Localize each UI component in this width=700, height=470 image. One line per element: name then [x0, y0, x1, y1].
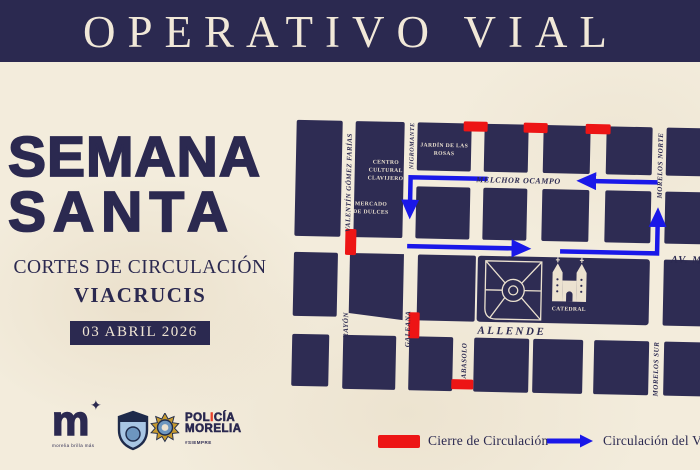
city-block: [663, 260, 700, 327]
poster-title: OPERATIVO VIAL: [83, 0, 619, 62]
closure-bar: [586, 124, 611, 135]
place-label-mercado-2: DE DULCES: [353, 209, 389, 216]
city-block: [541, 189, 589, 242]
city-block: [473, 338, 529, 393]
poster: OPERATIVO VIAL SEMANA SANTA CORTES DE CI…: [0, 0, 700, 470]
header-banner: OPERATIVO VIAL: [0, 0, 700, 62]
date-badge-wrap: 03 ABRIL 2026: [8, 321, 272, 345]
city-block: [408, 336, 453, 391]
city-block: [532, 339, 583, 394]
city-block: [349, 253, 404, 320]
title-semana: SEMANA: [8, 130, 272, 185]
police-logo: POLICÍA MORELIA #SIEMPRE: [150, 413, 242, 445]
city-block: [666, 128, 700, 177]
left-panel: SEMANA SANTA CORTES DE CIRCULACIÓN VIACR…: [8, 130, 272, 345]
closure-bar: [524, 123, 548, 134]
street-label-galeana: GALEANA: [404, 311, 413, 348]
legend-closure-label: Cierre de Circulación: [428, 433, 548, 449]
street-label-morelos-sur: MORELOS SUR: [652, 342, 661, 398]
route-ocampo-west: [584, 181, 658, 183]
city-logo: m✦ morelia brilla más: [52, 402, 116, 448]
city-block: [293, 252, 338, 317]
city-block: [593, 340, 649, 395]
city-block: [342, 335, 396, 390]
legend-route-label: Circulación del Viacrucis: [603, 433, 700, 449]
place-label-centro-cultural-2: CULTURAL: [369, 167, 403, 174]
city-tagline: morelia brilla más: [52, 443, 116, 448]
police-shield-icon: [116, 409, 150, 451]
city-block: [543, 125, 591, 174]
closure-bar: [451, 379, 473, 389]
subtitle: CORTES DE CIRCULACIÓN: [8, 257, 272, 279]
street-label-melchor-ocampo: MELCHOR OCAMPO: [475, 175, 561, 186]
closure-swatch: [378, 435, 420, 448]
street-label-morelos-norte: MORELOS NORTE: [656, 133, 665, 200]
route-arrow-icon: [546, 434, 594, 448]
closure-bar: [464, 121, 488, 132]
street-map: VALENTÍN GÓMEZ FARÍAS NIGROMANTE RAYÓN G…: [288, 108, 700, 400]
date-badge: 03 ABRIL 2026: [70, 321, 210, 345]
street-label-allende: ALLENDE: [476, 325, 546, 338]
city-block: [664, 192, 700, 245]
city-logo-letter: m: [52, 397, 89, 444]
route-madero-east: [407, 246, 524, 248]
city-block: [291, 334, 329, 387]
title-santa: SANTA: [8, 185, 272, 240]
event-name: VIACRUCIS: [8, 283, 272, 308]
legend-route: Circulación del Viacrucis: [546, 433, 700, 449]
sparkle-icon: ✦: [90, 398, 102, 415]
city-block: [417, 254, 476, 321]
police-star-icon: [150, 413, 180, 443]
police-name-line2: MORELIA: [185, 424, 242, 435]
place-label-mercado-1: MERCADO: [355, 201, 388, 208]
city-block: [415, 186, 470, 239]
city-block: [482, 188, 527, 241]
city-block: [604, 190, 651, 243]
street-label-nigromante: NIGROMANTE: [408, 122, 416, 170]
legend-closure: Cierre de Circulación: [378, 433, 548, 449]
street-label-rayon: RAYÓN: [342, 312, 351, 339]
place-label-centro-cultural-1: CENTRO: [373, 159, 400, 166]
police-hashtag: #SIEMPRE: [185, 440, 242, 445]
city-block: [294, 120, 342, 237]
place-label-catedral: CATEDRAL: [552, 306, 586, 313]
street-label-valentin-gomez-farias: VALENTÍN GÓMEZ FARÍAS: [344, 133, 354, 232]
place-label-centro-cultural-3: CLAVIJERO: [368, 175, 404, 182]
city-block: [484, 124, 529, 173]
city-block: [606, 126, 653, 175]
city-block: [663, 342, 700, 397]
place-label-jardin-2: ROSAS: [434, 151, 455, 157]
street-label-abasolo: ABASOLO: [460, 343, 469, 380]
street-label-av-madero: AV. MADERO: [670, 255, 700, 268]
